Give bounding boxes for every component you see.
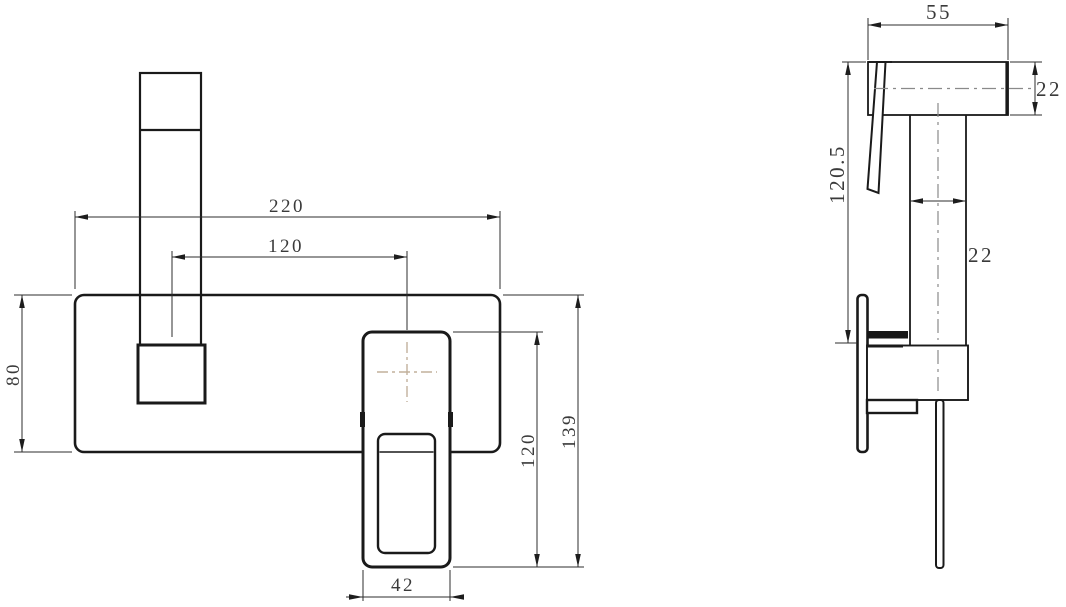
dim-pipe-section: 22 xyxy=(910,198,994,267)
front-view: 220 120 80 120 xyxy=(3,73,584,601)
dim-label-22-pipe: 22 xyxy=(968,243,994,267)
dim-label-120-5: 120.5 xyxy=(825,144,849,204)
dim-label-120-right: 120 xyxy=(518,432,539,468)
valve-top-bar xyxy=(867,331,908,339)
dim-handle-width: 42 xyxy=(346,570,464,601)
valve-box xyxy=(867,346,968,401)
dim-spout-reach: 55 xyxy=(868,0,1008,60)
side-view: 55 22 120.5 22 xyxy=(825,0,1062,568)
valve-lower-step xyxy=(867,400,917,413)
spout-base xyxy=(138,345,205,403)
dim-label-55: 55 xyxy=(926,0,952,24)
dim-label-120-top: 120 xyxy=(268,236,304,257)
handle xyxy=(363,332,451,567)
dim-plate-height: 80 xyxy=(3,295,72,452)
dim-label-80: 80 xyxy=(3,362,24,386)
dim-label-42: 42 xyxy=(391,575,415,596)
dim-overall-height: 139 xyxy=(503,295,584,567)
dim-label-22-spout: 22 xyxy=(1036,77,1062,101)
valve-body xyxy=(867,331,968,413)
dim-label-220: 220 xyxy=(269,196,305,217)
lever-rod xyxy=(936,400,944,568)
spout xyxy=(138,73,205,403)
dim-label-139: 139 xyxy=(559,413,580,449)
technical-drawing-canvas: 220 120 80 120 xyxy=(0,0,1066,607)
wall-plate-side xyxy=(858,295,868,452)
faucet-drawing: 220 120 80 120 xyxy=(0,0,1066,607)
